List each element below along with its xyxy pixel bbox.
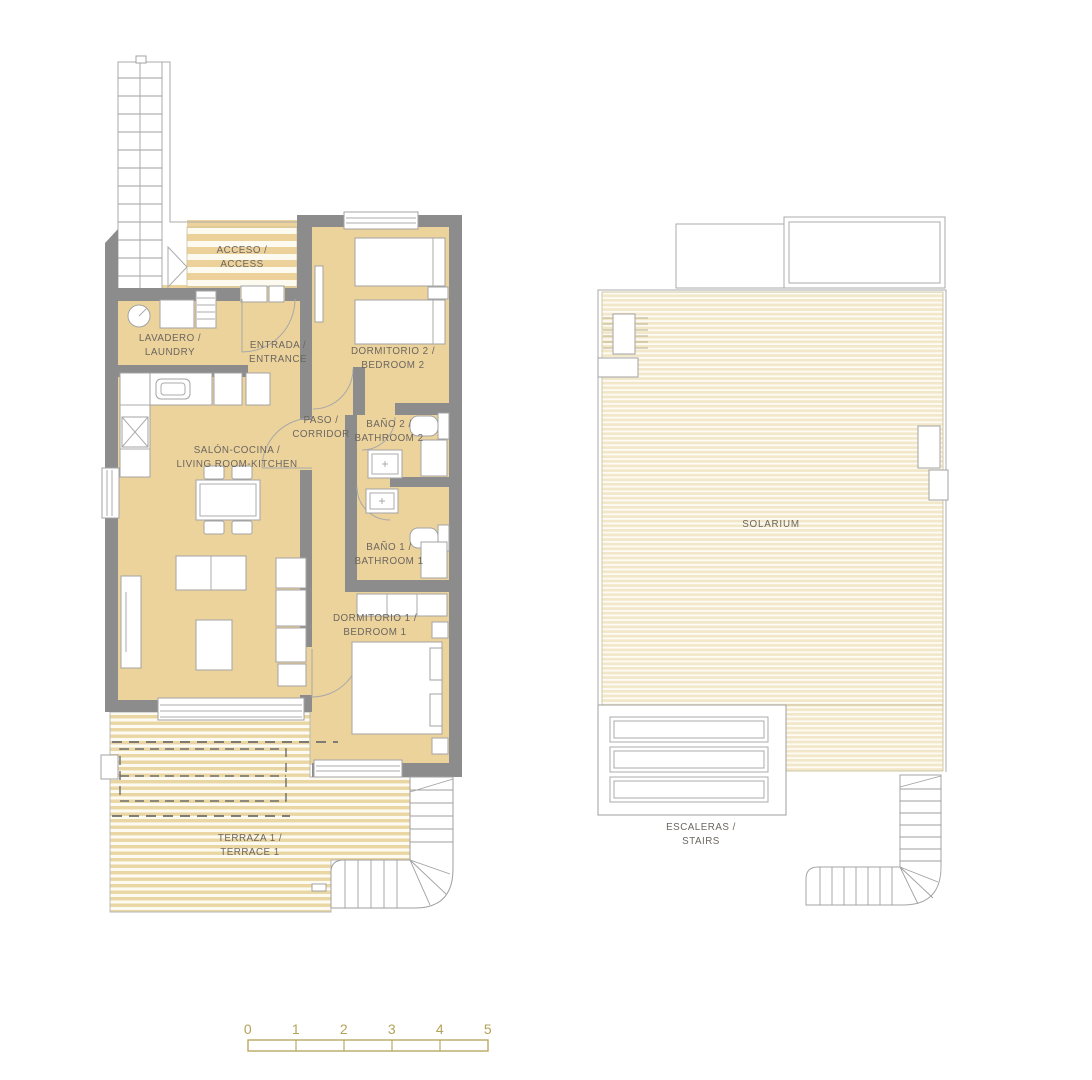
laundry-counter — [160, 300, 194, 328]
scale-number: 1 — [292, 1021, 300, 1037]
ac-unit — [613, 314, 635, 354]
label-escaleras: ESCALERAS / — [666, 822, 736, 833]
svg-text:CORRIDOR: CORRIDOR — [292, 429, 349, 440]
svg-text:LIVING ROOM-KITCHEN: LIVING ROOM-KITCHEN — [176, 459, 297, 470]
chair — [204, 521, 224, 534]
scale-number: 5 — [484, 1021, 492, 1037]
solarium-plan: SOLARIUM ESCALERAS / STAIRS — [598, 217, 948, 905]
shower-tray — [421, 542, 447, 578]
solarium-exterior-stair — [806, 775, 941, 905]
sectional-sofa — [276, 558, 306, 588]
label-dormitorio1: DORMITORIO 1 / — [333, 613, 417, 624]
kitchen-appliance — [246, 373, 270, 405]
label-bano2: BAÑO 2 / — [366, 419, 411, 430]
label-lavadero: LAVADERO / — [139, 333, 201, 344]
ac-unit — [598, 358, 638, 377]
svg-text:STAIRS: STAIRS — [682, 836, 720, 847]
label-solarium: SOLARIUM — [742, 519, 800, 530]
armchair — [196, 620, 232, 670]
dining-table — [196, 480, 260, 520]
svg-text:LAUNDRY: LAUNDRY — [145, 347, 195, 358]
single-bed — [355, 238, 445, 286]
terrace-pillar — [101, 755, 118, 779]
label-bano1: BAÑO 1 / — [366, 542, 411, 553]
toilet-tank — [438, 413, 449, 439]
nightstand — [428, 287, 448, 299]
svg-text:ACCESS: ACCESS — [220, 259, 263, 270]
svg-text:BEDROOM 2: BEDROOM 2 — [361, 360, 424, 371]
pillow — [430, 694, 442, 726]
rooftop-niche — [929, 470, 948, 500]
svg-text:BATHROOM 2: BATHROOM 2 — [354, 433, 423, 444]
solarium-deck — [602, 292, 943, 771]
living-side-window — [102, 468, 119, 518]
scale-bar: 0 1 2 3 4 5 — [244, 1021, 492, 1051]
svg-text:ENTRANCE: ENTRANCE — [249, 354, 307, 365]
svg-text:TERRACE 1: TERRACE 1 — [220, 847, 279, 858]
svg-text:BEDROOM 1: BEDROOM 1 — [343, 627, 406, 638]
bedroom1-terrace-window — [314, 760, 402, 777]
ground-floor-plan: ACCESO / ACCESS LAVADERO / LAUNDRY ENTRA… — [101, 56, 462, 912]
rooftop-niche — [918, 426, 940, 468]
front-door — [241, 286, 284, 302]
double-bed — [352, 642, 442, 734]
sectional-sofa — [276, 628, 306, 662]
scale-number: 3 — [388, 1021, 396, 1037]
label-acceso: ACCESO / — [217, 245, 268, 256]
sectional-sofa — [276, 590, 306, 626]
svg-text:BATHROOM 1: BATHROOM 1 — [354, 556, 423, 567]
label-dormitorio2: DORMITORIO 2 / — [351, 346, 435, 357]
stair-newel-post — [136, 56, 146, 63]
nightstand — [432, 622, 448, 638]
nightstand — [432, 738, 448, 754]
stairwell-box — [598, 705, 786, 815]
access-paving — [187, 227, 297, 287]
roof-outlines — [676, 217, 945, 288]
label-terraza: TERRAZA 1 / — [218, 833, 282, 844]
shower-tray — [421, 440, 447, 476]
sectional-sofa — [278, 664, 306, 686]
stair-post — [312, 884, 326, 891]
single-bed — [355, 300, 445, 344]
chair — [232, 521, 252, 534]
floorplan-page: ACCESO / ACCESS LAVADERO / LAUNDRY ENTRA… — [0, 0, 1092, 1080]
tv-unit — [121, 576, 141, 668]
bedroom2-window — [344, 212, 418, 229]
scale-number: 4 — [436, 1021, 444, 1037]
water-heater — [196, 291, 216, 328]
living-terrace-window — [158, 698, 304, 720]
pillow — [430, 648, 442, 680]
scale-number: 0 — [244, 1021, 252, 1037]
gate-swing-symbol — [168, 247, 187, 287]
wardrobe — [315, 266, 323, 322]
label-salon: SALÓN-COCINA / — [194, 445, 280, 456]
label-entrada: ENTRADA / — [250, 340, 306, 351]
label-paso: PASO / — [304, 415, 339, 426]
kitchen-island-unit — [214, 373, 242, 405]
scale-number: 2 — [340, 1021, 348, 1037]
